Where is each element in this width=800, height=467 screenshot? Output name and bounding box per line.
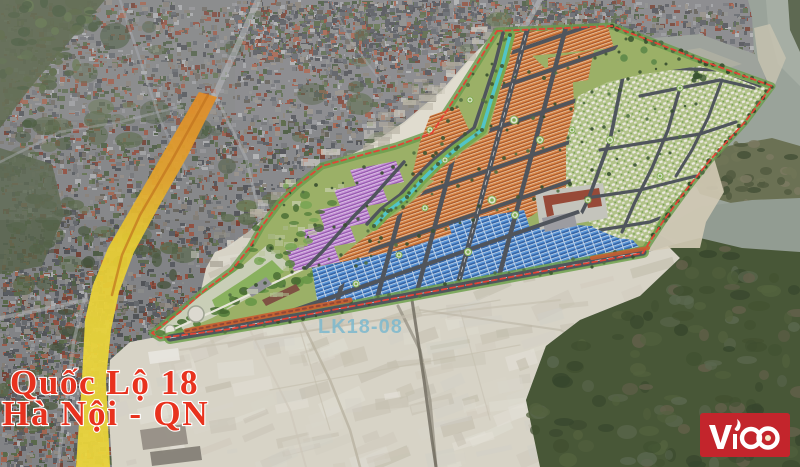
svg-text:LK18-08: LK18-08 [318,316,403,338]
svg-text:Hà Nội - QN: Hà Nội - QN [2,394,209,433]
